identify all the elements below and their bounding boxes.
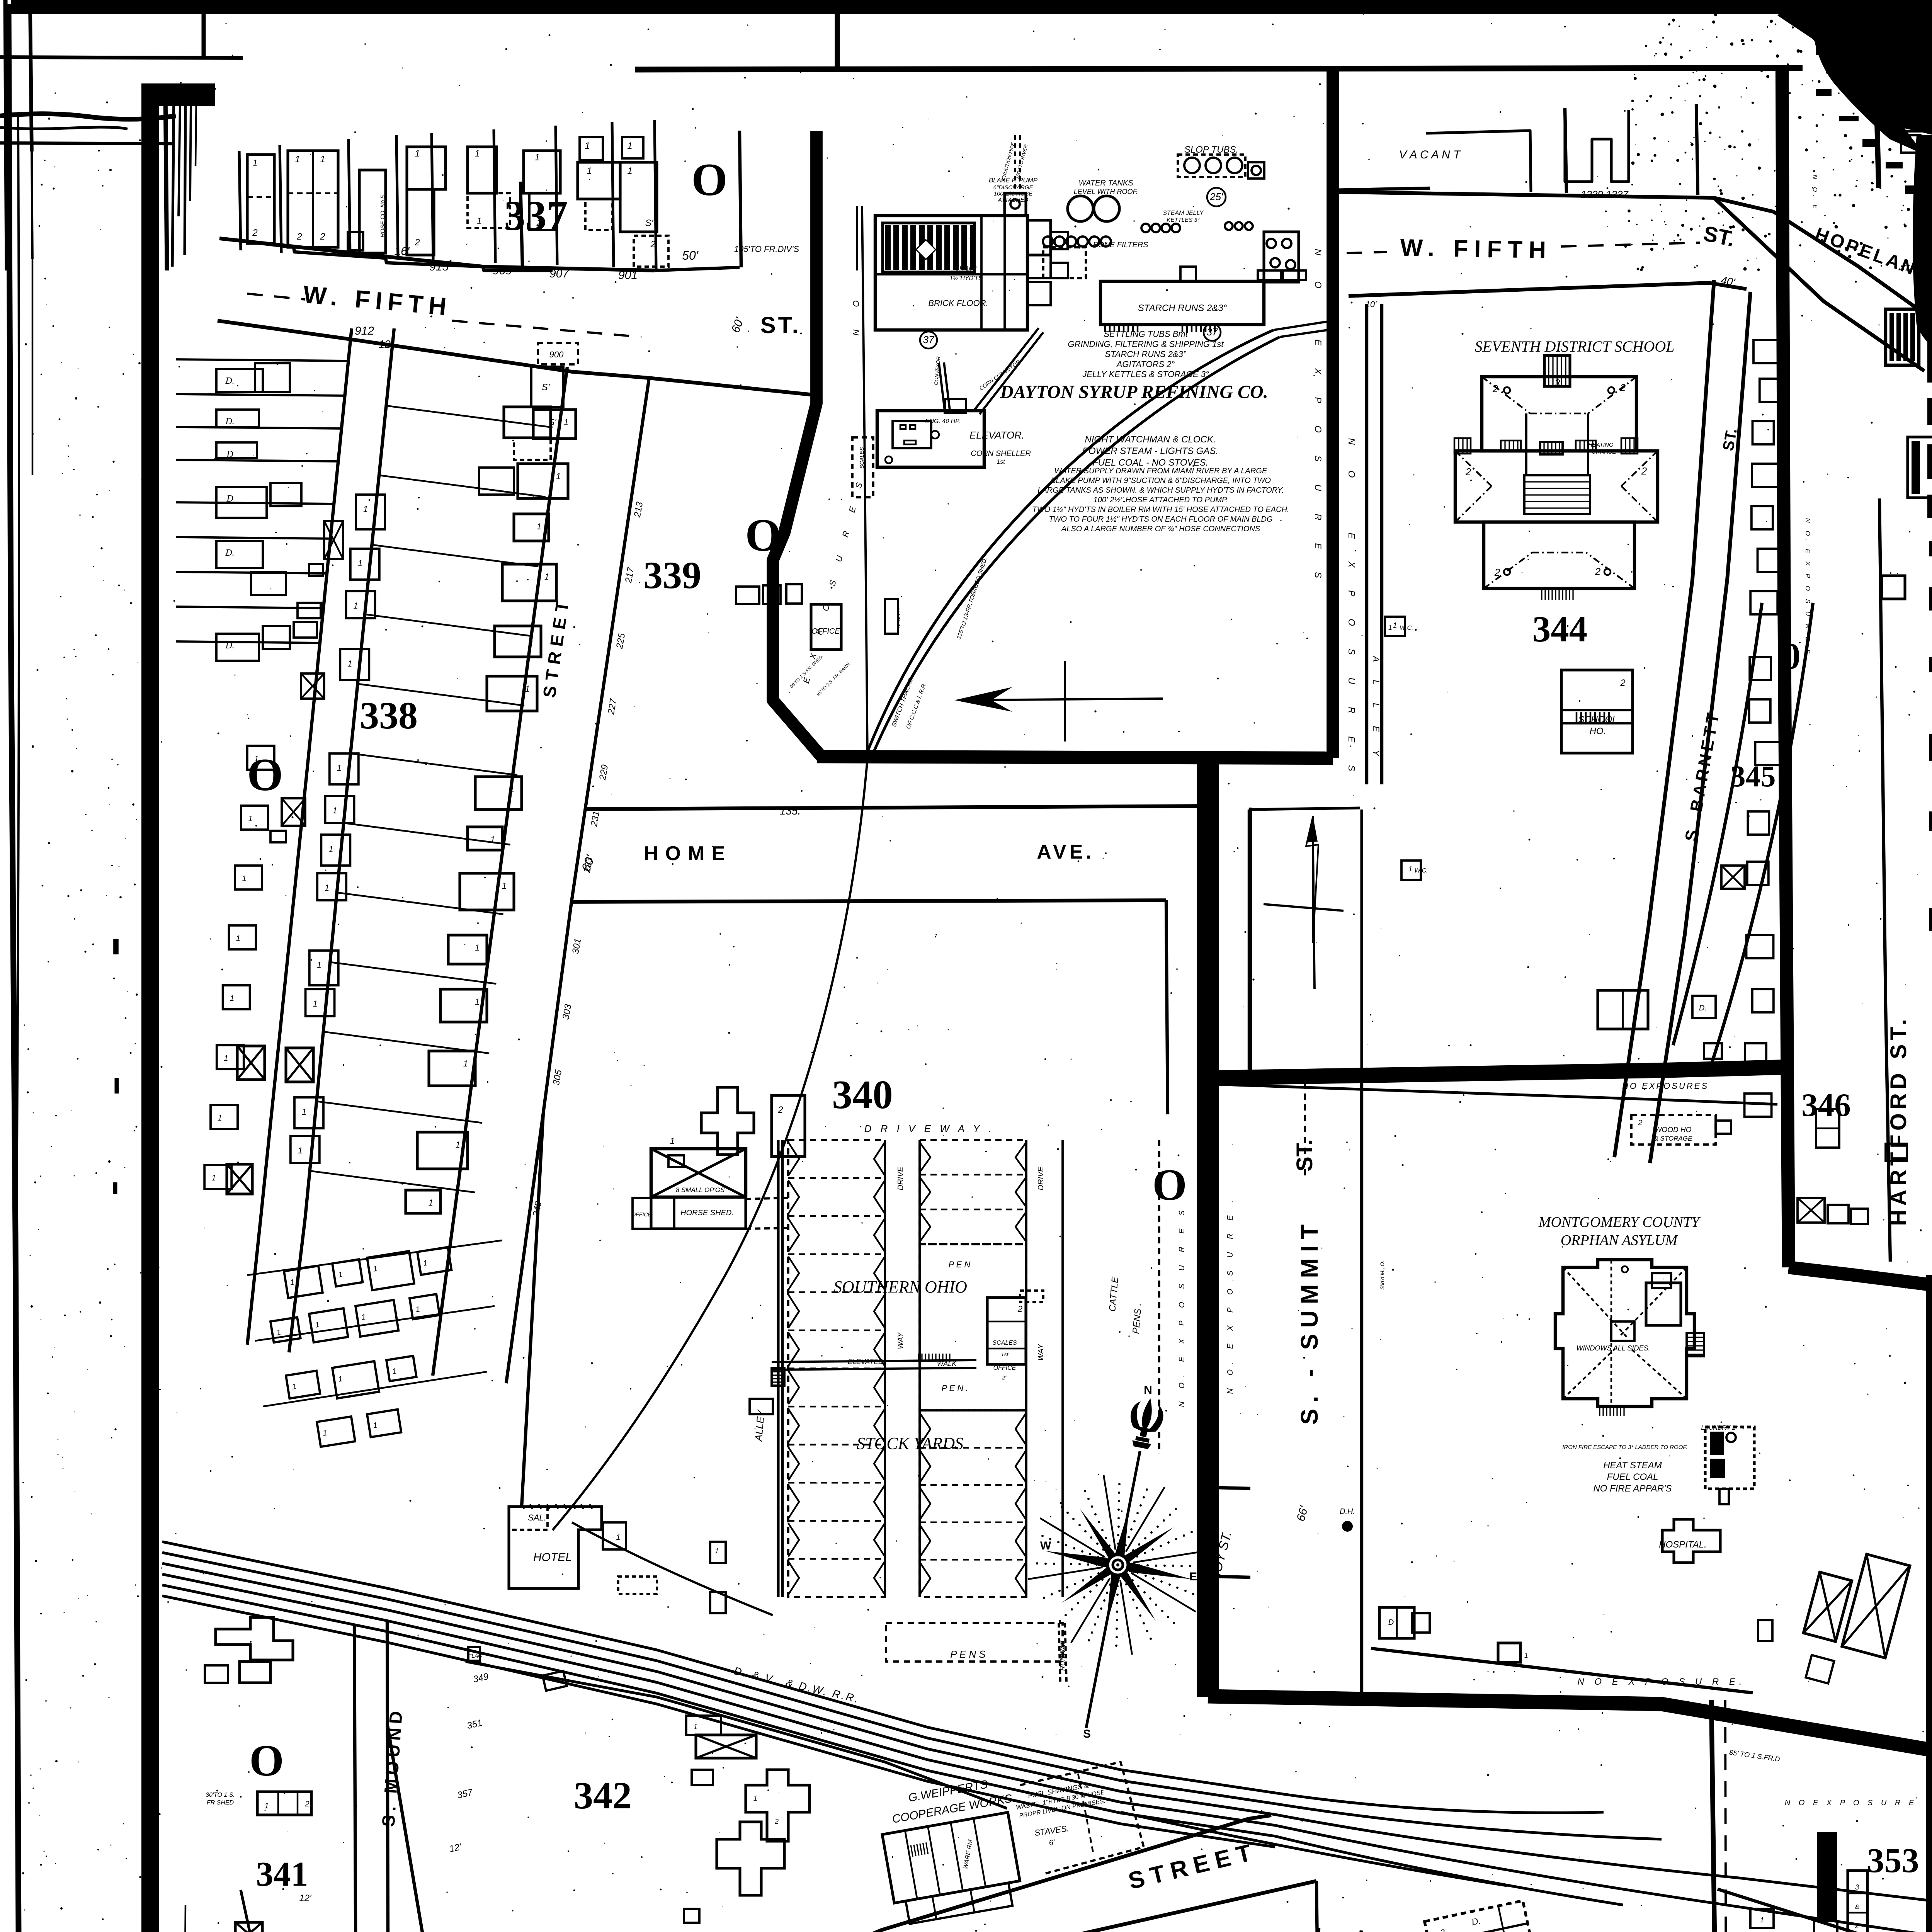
svg-text:1: 1	[320, 154, 325, 165]
svg-text:NIGHT WATCHMAN & CLOCK.: NIGHT WATCHMAN & CLOCK.	[1085, 434, 1216, 445]
svg-text:2: 2	[1017, 1304, 1022, 1314]
svg-text:LAUNDRY 2°: LAUNDRY 2°	[1701, 1425, 1738, 1431]
svg-text:1: 1	[556, 471, 561, 481]
svg-text:SCHOOL: SCHOOL	[1578, 714, 1617, 725]
svg-text:SCALES: SCALES	[896, 608, 901, 628]
svg-text:ALSO A LARGE NUMBER OF ¾" HOSE: ALSO A LARGE NUMBER OF ¾" HOSE CONNECTIO…	[1061, 525, 1260, 533]
svg-text:N O: N O	[1346, 438, 1357, 490]
svg-text:915: 915	[429, 260, 449, 273]
svg-text:1st: 1st	[1001, 1351, 1009, 1357]
svg-text:DRIVE: DRIVE	[896, 1167, 905, 1190]
svg-text:N O E X P O S U R E.: N O E X P O S U R E.	[1577, 1677, 1745, 1687]
svg-text:1st: 1st	[997, 459, 1005, 465]
svg-text:2: 2	[414, 237, 420, 248]
svg-text:37: 37	[1207, 326, 1218, 338]
svg-text:1: 1	[415, 148, 420, 159]
svg-text:907: 907	[549, 267, 569, 280]
svg-text:S': S'	[542, 382, 550, 393]
svg-text:2: 2	[1638, 1119, 1642, 1127]
svg-text:1: 1	[332, 806, 337, 815]
svg-text:CORN SHELLER: CORN SHELLER	[971, 449, 1031, 458]
svg-text:ATTACHED: ATTACHED	[998, 197, 1029, 203]
svg-text:1: 1	[224, 1054, 228, 1063]
svg-text:SCALES: SCALES	[992, 1340, 1017, 1346]
svg-text:AVE.: AVE.	[1037, 841, 1095, 863]
svg-text:12': 12'	[379, 338, 393, 350]
svg-text:341: 341	[256, 1855, 308, 1893]
svg-text:37: 37	[923, 334, 935, 345]
svg-text:BLAKE PUMP WITH 9"SUCTION & 6": BLAKE PUMP WITH 9"SUCTION & 6"DISCHARGE,…	[1051, 476, 1271, 485]
svg-text:TWO 1½" HYD'TS IN BOILER RM WI: TWO 1½" HYD'TS IN BOILER RM WITH 15' HOS…	[1032, 505, 1289, 514]
svg-text:1: 1	[670, 1136, 675, 1146]
svg-text:W. FIFTH: W. FIFTH	[1400, 235, 1552, 264]
svg-text:1: 1	[616, 1533, 620, 1542]
svg-text:1: 1	[252, 158, 257, 168]
svg-text:LARGE TANKS AS SHOWN. & WHICH: LARGE TANKS AS SHOWN. & WHICH SUPPLY HYD…	[1037, 486, 1284, 495]
svg-text:N O: N O	[851, 290, 861, 335]
svg-text:N O. E X P O S U R E .: N O. E X P O S U R E .	[1226, 1195, 1235, 1394]
svg-text:N O. E X P O S U R E S: N O. E X P O S U R E S	[1804, 518, 1811, 657]
svg-text:2: 2	[252, 228, 257, 238]
svg-text:SCALES: SCALES	[859, 447, 865, 469]
svg-text:1: 1	[242, 874, 247, 883]
svg-text:1: 1	[585, 141, 590, 151]
svg-text:1: 1	[715, 1547, 719, 1555]
svg-text:W.C.: W.C.	[1415, 867, 1428, 874]
svg-text:HOSPITAL.: HOSPITAL.	[1659, 1539, 1707, 1550]
svg-text:SOUTHERN OHIO: SOUTHERN OHIO	[833, 1277, 967, 1296]
svg-text:1: 1	[502, 881, 507, 891]
svg-text:O: O	[247, 749, 283, 800]
svg-text:HOTEL: HOTEL	[533, 1551, 572, 1564]
svg-text:V A C A N T: V A C A N T	[1399, 148, 1462, 161]
svg-text:HEAT STEAM: HEAT STEAM	[1603, 1460, 1662, 1471]
svg-text:SETTLING TUBS Bmt: SETTLING TUBS Bmt	[1104, 329, 1188, 339]
svg-text:D: D	[226, 494, 233, 504]
svg-text:SAL.: SAL.	[528, 1513, 546, 1522]
svg-text:P E N .: P E N .	[942, 1383, 968, 1393]
svg-text:KETTLES 3°: KETTLES 3°	[1167, 217, 1199, 223]
svg-text:1: 1	[694, 1723, 697, 1731]
svg-text:TWO TO FOUR 1½" HYD'TS ON EACH: TWO TO FOUR 1½" HYD'TS ON EACH FLOOR OF …	[1049, 515, 1272, 524]
svg-text:1: 1	[264, 1802, 269, 1810]
svg-text:WAY: WAY	[1037, 1343, 1045, 1361]
svg-text:HOSE CO. No 5: HOSE CO. No 5	[379, 195, 386, 238]
svg-text:SEVENTH DISTRICT SCHOOL: SEVENTH DISTRICT SCHOOL	[1475, 338, 1674, 355]
svg-text:1: 1	[525, 684, 530, 694]
svg-text:1½"HYD'TS: 1½"HYD'TS	[949, 275, 983, 282]
svg-text:O: O	[745, 509, 781, 561]
svg-text:ELEVATOR.: ELEVATOR.	[969, 429, 1024, 441]
svg-text:MONTGOMERY COUNTY: MONTGOMERY COUNTY	[1538, 1214, 1701, 1230]
svg-text:BLAKE F. PUMP: BLAKE F. PUMP	[989, 177, 1038, 184]
svg-text:HORSE SHED.: HORSE SHED.	[680, 1209, 734, 1217]
svg-text:ORPHAN ASYLUM: ORPHAN ASYLUM	[1561, 1232, 1679, 1248]
svg-text:912: 912	[355, 325, 374, 337]
svg-text:ENG. 40 HP.: ENG. 40 HP.	[925, 418, 960, 425]
svg-text:D R I V E W A Y .: D R I V E W A Y .	[864, 1123, 995, 1134]
svg-text:1: 1	[537, 522, 541, 531]
svg-text:STEAM JELLY: STEAM JELLY	[1163, 210, 1204, 216]
svg-text:344: 344	[1532, 609, 1588, 650]
svg-text:HO.: HO.	[471, 1659, 480, 1665]
svg-text:1: 1	[298, 1146, 303, 1155]
svg-text:1: 1	[1393, 621, 1397, 630]
svg-text:FLAG: FLAG	[468, 1653, 483, 1659]
svg-text:HEATING: HEATING	[1588, 442, 1614, 448]
svg-text:HOME: HOME	[644, 842, 732, 865]
svg-text:338: 338	[360, 694, 418, 737]
svg-text:2: 2	[774, 1818, 779, 1825]
svg-text:E X P O S U R E S: E X P O S U R E S	[1346, 532, 1357, 781]
svg-text:POWER STEAM - LIGHTS GAS.: POWER STEAM - LIGHTS GAS.	[1082, 446, 1218, 456]
svg-text:1: 1	[295, 154, 300, 165]
svg-text:HO.: HO.	[1590, 726, 1606, 736]
svg-text:2: 2	[1620, 678, 1625, 688]
svg-text:D.: D.	[225, 376, 234, 386]
svg-text:D: D	[1388, 1618, 1394, 1627]
svg-text:O: O	[1152, 1160, 1187, 1209]
svg-text:1: 1	[302, 1107, 306, 1117]
svg-text:S'ld'd M., O.: S'ld'd M., O.	[1379, 1260, 1385, 1289]
svg-text:135.: 135.	[780, 805, 801, 817]
svg-text:GRINDING, FILTERING & SHIPPING: GRINDING, FILTERING & SHIPPING 1st	[1068, 339, 1224, 349]
svg-text:909: 909	[493, 264, 512, 277]
svg-text:1: 1	[1408, 865, 1412, 873]
svg-text:12': 12'	[299, 1893, 312, 1903]
svg-text:D.: D.	[1699, 1004, 1707, 1012]
svg-text:1: 1	[212, 1174, 216, 1182]
svg-text:16': 16'	[394, 245, 410, 258]
svg-text:1: 1	[317, 960, 321, 970]
svg-text:N O. E X P O S U R E S: N O. E X P O S U R E S	[1178, 1205, 1186, 1407]
svg-text:1: 1	[463, 1059, 468, 1068]
svg-text:2: 2	[1595, 566, 1601, 577]
svg-text:100' 2½" HOSE ATTACHED TO PUMP: 100' 2½" HOSE ATTACHED TO PUMP.	[1094, 496, 1228, 504]
svg-text:1: 1	[354, 601, 358, 611]
svg-text:P E N S: P E N S	[950, 1648, 986, 1660]
svg-text:1: 1	[337, 763, 342, 773]
svg-text:W: W	[1040, 1539, 1051, 1552]
svg-text:3: 3	[1855, 1883, 1859, 1891]
svg-text:1: 1	[587, 166, 592, 176]
svg-text:STOCK YARDS: STOCK YARDS	[857, 1434, 963, 1453]
svg-text:OFFICE: OFFICE	[993, 1365, 1016, 1371]
svg-text:30'TO 1 S.: 30'TO 1 S.	[206, 1792, 235, 1798]
svg-text:1339: 1339	[1581, 189, 1603, 200]
svg-text:1: 1	[475, 997, 480, 1007]
svg-text:1: 1	[474, 148, 480, 159]
svg-text:1: 1	[534, 152, 539, 163]
svg-text:WINDOWS ALL SIDES.: WINDOWS ALL SIDES.	[1576, 1344, 1650, 1352]
svg-text:WAY: WAY	[896, 1332, 905, 1349]
svg-text:NO EXPOSURES: NO EXPOSURES	[1622, 1081, 1709, 1091]
svg-text:WALK: WALK	[937, 1360, 957, 1367]
svg-text:OFFICE: OFFICE	[631, 1211, 651, 1218]
svg-text:1: 1	[248, 815, 252, 823]
svg-text:25': 25'	[1209, 191, 1223, 202]
svg-text:901: 901	[618, 269, 638, 282]
svg-text:100' 2½"HOSE: 100' 2½"HOSE	[994, 190, 1033, 197]
svg-text:1: 1	[564, 417, 568, 427]
svg-text:N O: N O	[1313, 249, 1323, 300]
svg-text:O: O	[249, 1736, 284, 1785]
svg-text:DRIVE: DRIVE	[1037, 1167, 1045, 1190]
svg-text:1: 1	[1524, 1651, 1528, 1659]
svg-text:& STORAGE: & STORAGE	[1654, 1135, 1693, 1142]
svg-text:JELLY KETTLES & STORAGE 3°: JELLY KETTLES & STORAGE 3°	[1082, 369, 1209, 379]
svg-text:40': 40'	[1720, 274, 1736, 288]
svg-text:D.: D.	[225, 641, 234, 651]
svg-text:2: 2	[650, 239, 655, 250]
svg-text:1: 1	[1760, 1916, 1764, 1924]
svg-text:50': 50'	[682, 248, 699, 262]
svg-text:WATER SUPPLY DRAWN FROM MIAMI: WATER SUPPLY DRAWN FROM MIAMI RIVER BY A…	[1054, 467, 1267, 475]
svg-text:1: 1	[325, 883, 329, 893]
svg-text:A L L E Y: A L L E Y	[1371, 655, 1381, 764]
svg-text:HARTFORD ST.: HARTFORD ST.	[1886, 1015, 1911, 1226]
svg-text:353: 353	[1867, 1842, 1919, 1880]
svg-text:337: 337	[504, 192, 568, 239]
svg-text:1: 1	[358, 558, 362, 568]
svg-text:1: 1	[627, 166, 632, 176]
svg-text:P E N: P E N	[949, 1260, 971, 1269]
svg-text:900: 900	[549, 350, 564, 359]
svg-text:O: O	[691, 154, 727, 205]
svg-text:2: 2	[1492, 383, 1498, 395]
svg-text:2: 2	[320, 231, 325, 242]
svg-text:IRON FIRE ESCAPE TO 3° LADDE: IRON FIRE ESCAPE TO 3° LADDER TO ROOF.	[1562, 1444, 1687, 1451]
svg-text:8 SMALL OP'GS: 8 SMALL OP'GS	[676, 1186, 725, 1194]
svg-text:6"DISCHARGE: 6"DISCHARGE	[993, 184, 1034, 191]
svg-text:SLOP TUBS.: SLOP TUBS.	[1184, 145, 1238, 155]
svg-text:1: 1	[753, 1794, 757, 1802]
svg-text:S': S'	[645, 218, 654, 228]
svg-text:0: 0	[1782, 636, 1801, 677]
svg-text:1: 1	[456, 1140, 460, 1150]
svg-text:WOOD HO: WOOD HO	[1655, 1126, 1692, 1134]
svg-text:STARCH RUNS 2&3°: STARCH RUNS 2&3°	[1105, 349, 1187, 359]
svg-text:ST.: ST.	[760, 312, 801, 338]
svg-text:2: 2	[777, 1105, 783, 1115]
svg-text:FURNACE: FURNACE	[1588, 449, 1616, 455]
svg-text:D.: D.	[225, 548, 234, 558]
svg-text:LEVEL WITH ROOF.: LEVEL WITH ROOF.	[1074, 188, 1138, 196]
svg-text:2: 2	[1641, 465, 1647, 477]
svg-text:3: 3	[1554, 377, 1560, 389]
svg-text:1: 1	[1388, 624, 1392, 631]
svg-text:1: 1	[328, 844, 333, 854]
svg-text:346: 346	[1801, 1087, 1851, 1123]
svg-text:D: D	[226, 449, 233, 459]
svg-text:1: 1	[510, 784, 514, 794]
svg-text:NO FIRE APPAR'S: NO FIRE APPAR'S	[1593, 1483, 1672, 1494]
svg-text:S. - SUMMIT: S. - SUMMIT	[1296, 1218, 1323, 1425]
svg-text:S: S	[1083, 1728, 1091, 1740]
svg-text:E X P O S U R E S: E X P O S U R E S	[1313, 339, 1323, 588]
svg-text:1: 1	[627, 141, 632, 151]
svg-text:1: 1	[476, 216, 481, 226]
svg-text:1: 1	[236, 934, 240, 943]
svg-text:WATER TANKS: WATER TANKS	[1078, 179, 1133, 187]
svg-text:FUEL COAL - NO STOVES.: FUEL COAL - NO STOVES.	[1092, 457, 1208, 468]
svg-text:N O E X P O S U R E: N O E X P O S U R E	[1785, 1799, 1917, 1807]
svg-text:ELEVATED: ELEVATED	[848, 1358, 883, 1366]
svg-text:BRICK FLOOR.: BRICK FLOOR.	[928, 298, 988, 308]
svg-text:10': 10'	[1366, 299, 1377, 309]
svg-text:345: 345	[1731, 759, 1776, 793]
svg-text:1: 1	[230, 994, 234, 1003]
svg-text:2: 2	[1494, 566, 1500, 578]
svg-text:ST.: ST.	[1292, 1139, 1317, 1172]
svg-text:AGITATORS 2°: AGITATORS 2°	[1116, 359, 1175, 369]
svg-text:342: 342	[574, 1774, 632, 1817]
svg-text:2: 2	[296, 231, 302, 242]
svg-text:1: 1	[218, 1114, 222, 1122]
svg-text:N O. E: N O. E	[1811, 175, 1818, 212]
svg-text:D.H.: D.H.	[1340, 1507, 1355, 1516]
svg-text:CH 100': CH 100'	[955, 265, 977, 272]
svg-text:S': S'	[549, 417, 557, 427]
svg-text:339: 339	[643, 554, 701, 597]
svg-text:1: 1	[363, 504, 368, 514]
svg-text:FUEL COAL: FUEL COAL	[1607, 1472, 1658, 1482]
svg-text:1: 1	[544, 572, 549, 582]
svg-text:340: 340	[832, 1072, 893, 1117]
svg-text:2: 2	[1855, 1922, 1859, 1930]
svg-text:2: 2	[304, 1800, 309, 1808]
svg-text:PENS: PENS	[1131, 1308, 1143, 1334]
svg-text:2: 2	[1620, 382, 1626, 393]
svg-text:2°: 2°	[1002, 1374, 1007, 1381]
svg-text:W.C.: W.C.	[1400, 625, 1413, 631]
svg-text:1: 1	[475, 943, 480, 952]
svg-text:BONE FILTERS: BONE FILTERS	[1093, 241, 1149, 249]
svg-text:2: 2	[1465, 466, 1471, 478]
svg-text:1: 1	[313, 999, 317, 1009]
svg-text:&: &	[1855, 1904, 1859, 1910]
svg-text:FR SHED: FR SHED	[207, 1799, 234, 1806]
svg-text:1337: 1337	[1606, 189, 1629, 200]
svg-text:D.: D.	[225, 417, 234, 427]
svg-text:1: 1	[347, 659, 352, 668]
svg-text:DAYTON SYRUP REFINING CO.: DAYTON SYRUP REFINING CO.	[1000, 382, 1268, 402]
svg-text:E: E	[1189, 1570, 1197, 1583]
svg-text:105'TO FR.DIV'S: 105'TO FR.DIV'S	[734, 244, 799, 254]
svg-text:1: 1	[429, 1198, 433, 1207]
svg-text:N: N	[1144, 1384, 1152, 1396]
svg-text:RUNWAY: RUNWAY	[1059, 1640, 1066, 1671]
svg-text:STARCH RUNS 2&3°: STARCH RUNS 2&3°	[1138, 303, 1227, 313]
